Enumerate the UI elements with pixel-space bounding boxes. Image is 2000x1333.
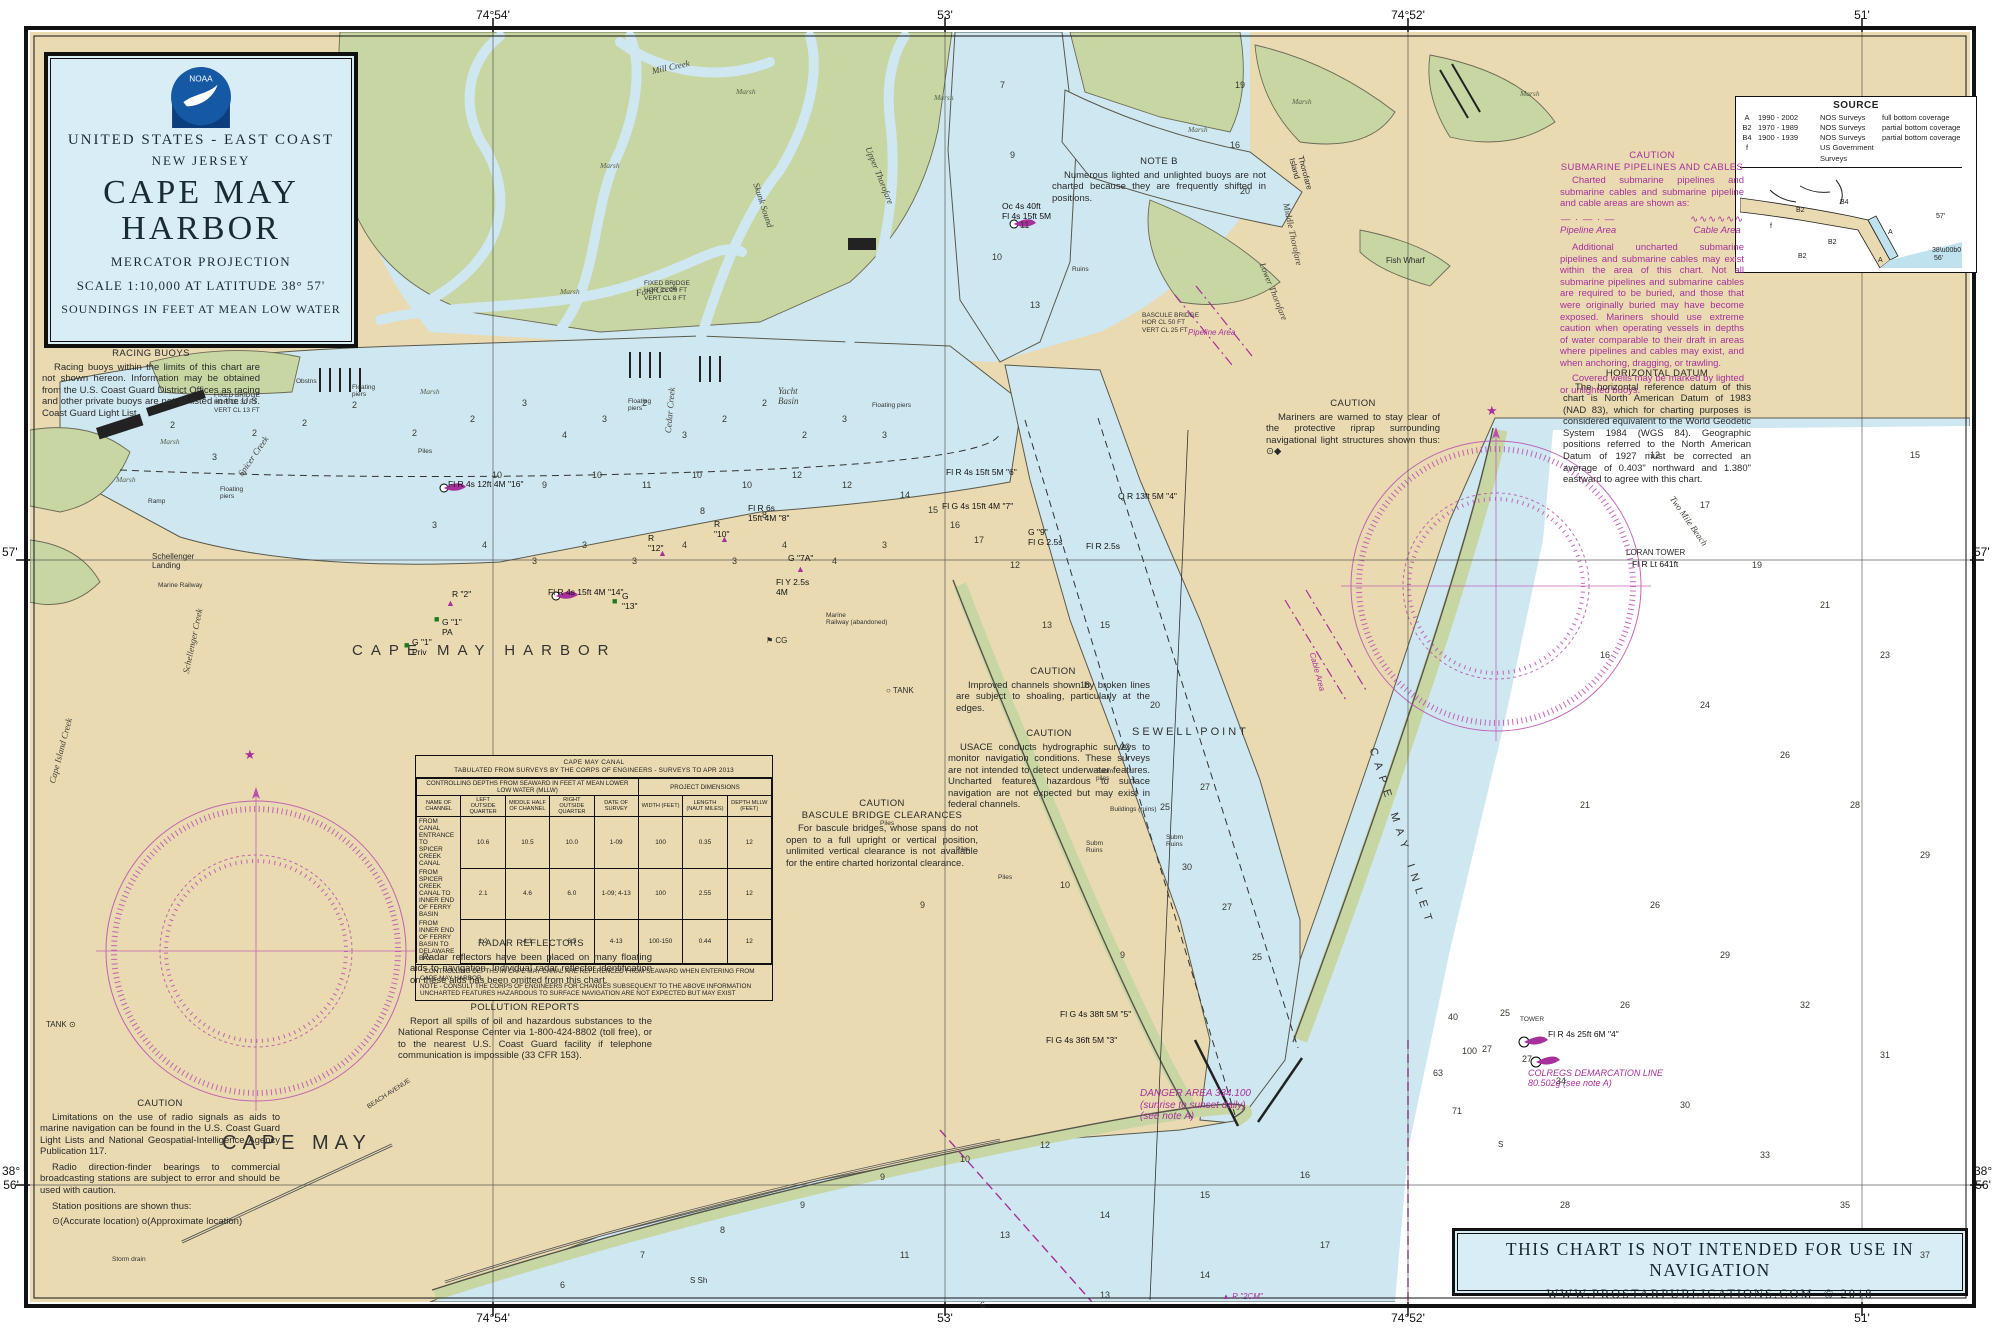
- note-text: The horizontal reference datum of this c…: [1563, 382, 1751, 486]
- note-caution-channels: CAUTIONImproved channels shown by broken…: [956, 666, 1150, 718]
- note-title-caution-pipelines: CAUTION SUBMARINE PIPELINES AND CABLES: [1560, 150, 1744, 173]
- sounding: 9: [920, 900, 925, 910]
- map-label: ▲: [796, 564, 805, 574]
- sounding: 21: [1580, 800, 1590, 810]
- sounding: 34: [1556, 1076, 1566, 1086]
- note-text: Charted submarine pipelines and submarin…: [1560, 175, 1744, 210]
- sounding: 14: [900, 490, 910, 500]
- map-label: G "1" PA: [442, 618, 462, 638]
- sounding: 3: [632, 556, 637, 566]
- sounding: 9: [1010, 150, 1015, 160]
- noaa-logo-icon: NOAA: [170, 66, 232, 128]
- canal-table-cell: LENGTH (NAUT MILES): [683, 796, 727, 817]
- canal-table-cell: 100: [638, 817, 682, 869]
- source-title: SOURCE: [1740, 100, 1972, 111]
- graticule-bottom: 53': [921, 1311, 969, 1325]
- canal-table-cell: 12: [727, 868, 771, 919]
- canal-table-cell: 0.44: [683, 919, 727, 963]
- sounding: 4: [682, 540, 687, 550]
- map-label: Fl R 2.5s: [1086, 542, 1120, 552]
- map-label: Q R 13ft 5M "4": [1118, 492, 1177, 502]
- svg-text:f: f: [1770, 223, 1772, 230]
- map-label: Fl R 6s 15ft 4M "8": [748, 504, 789, 524]
- map-label: Piles: [880, 820, 894, 827]
- sounding: 100: [1462, 1046, 1477, 1056]
- chart-projection: MERCATOR PROJECTION: [48, 254, 354, 270]
- canal-table-cell: LEFT OUTSIDE QUARTER: [461, 796, 505, 817]
- label-loran-tower: LORAN TOWER: [1626, 548, 1685, 557]
- sounding: 12: [842, 480, 852, 490]
- map-label: ★: [1486, 404, 1498, 419]
- sounding: 16: [950, 520, 960, 530]
- sounding: 23: [1880, 650, 1890, 660]
- map-label: ■: [404, 640, 409, 650]
- sounding: 25: [1500, 1008, 1510, 1018]
- sounding: 3: [882, 430, 887, 440]
- map-label: Fl G 4s 15ft 4M "7": [942, 502, 1013, 512]
- canal-table-cell: DEPTH MLLW (FEET): [727, 796, 771, 817]
- sounding: 2: [412, 428, 417, 438]
- canal-table-cell: 2.55: [683, 868, 727, 919]
- sounding: 16: [1230, 140, 1240, 150]
- chart-region: UNITED STATES - EAST COAST: [48, 132, 354, 149]
- note-title-pollution-reports: POLLUTION REPORTS: [398, 1002, 652, 1014]
- note-title-caution-bascule: CAUTION BASCULE BRIDGE CLEARANCES: [786, 798, 978, 821]
- note-pollution-reports: POLLUTION REPORTSReport all spills of oi…: [398, 1002, 652, 1066]
- svg-text:B2: B2: [1796, 207, 1805, 214]
- chart-soundings-note: SOUNDINGS IN FEET AT MEAN LOW WATER: [48, 302, 354, 317]
- sounding: 8: [720, 1225, 725, 1235]
- map-label: Subm Ruins: [1086, 840, 1103, 855]
- graticule-top: 74°52': [1384, 8, 1432, 22]
- disclaimer-line2: WWW.PROSTARPUBLICATIONS.COM © 2018: [1455, 1287, 1965, 1302]
- note-note-b: NOTE BNumerous lighted and unlighted buo…: [1052, 156, 1266, 208]
- publisher-url: WWW.PROSTARPUBLICATIONS.COM: [1546, 1287, 1813, 1301]
- map-label: S Sh: [690, 1276, 707, 1285]
- sounding: 10: [592, 470, 602, 480]
- source-cell: partial bottom coverage: [1882, 133, 1972, 143]
- sounding: 15: [1100, 620, 1110, 630]
- chart-sheet: NOAA UNITED STATES - EAST COAST NEW JERS…: [0, 0, 2000, 1333]
- label-sewell-point: SEWELL POINT: [1132, 726, 1249, 739]
- sounding: 3: [432, 520, 437, 530]
- sounding: 9: [880, 1172, 885, 1182]
- sounding: 3: [682, 430, 687, 440]
- graticule-top: 51': [1838, 8, 1886, 22]
- note-radar-reflectors: RADAR REFLECTORSRadar reflectors have be…: [410, 938, 652, 990]
- svg-text:38\u00b0: 38\u00b0: [1932, 247, 1961, 254]
- map-label: Ruins: [1072, 266, 1089, 273]
- sounding: 14: [1100, 1210, 1110, 1220]
- map-label: Pipeline Area: [1188, 328, 1235, 337]
- map-label: ■: [434, 614, 439, 624]
- map-label: TANK ⊙: [46, 1020, 76, 1029]
- label-schellenger-landing: Schellenger Landing: [152, 552, 194, 570]
- sounding: 12: [1040, 1140, 1050, 1150]
- sounding: 29: [1720, 950, 1730, 960]
- label-fish-wharf: Fish Wharf: [1386, 256, 1425, 265]
- svg-text:B4: B4: [1840, 199, 1849, 206]
- sounding: 33: [1760, 1150, 1770, 1160]
- canal-table-cell: MIDDLE HALF OF CHANNEL: [505, 796, 549, 817]
- canal-table-cell: 12: [727, 817, 771, 869]
- sounding: 6: [980, 1300, 985, 1310]
- map-label: Fl R 4s 12ft 4M "16": [448, 480, 523, 490]
- sounding: 17: [974, 535, 984, 545]
- source-cell: NOS Surveys: [1820, 113, 1878, 123]
- map-label: Marsh: [560, 288, 580, 297]
- sounding: 13: [1030, 300, 1040, 310]
- sounding: 3: [602, 414, 607, 424]
- sounding: 2: [352, 400, 357, 410]
- sounding: 25: [1160, 802, 1170, 812]
- sounding: 8: [700, 506, 705, 516]
- sounding: 26: [1650, 900, 1660, 910]
- sounding: 4: [562, 430, 567, 440]
- map-label: ▲: [446, 598, 455, 608]
- label-yacht-basin: Yacht Basin: [778, 386, 799, 407]
- note-text: Report all spills of oil and hazardous s…: [398, 1016, 652, 1062]
- sounding: 24: [1700, 700, 1710, 710]
- sounding: 13: [1100, 1290, 1110, 1300]
- sounding: 27: [1200, 782, 1210, 792]
- source-row: B41900 - 1939NOS Surveyspartial bottom c…: [1740, 133, 1972, 143]
- map-label: Marsh: [116, 476, 136, 485]
- sounding: 15: [1200, 1190, 1210, 1200]
- source-cell: 1990 - 2002: [1758, 113, 1816, 123]
- svg-text:B2: B2: [1798, 253, 1807, 260]
- source-row: fUS Government Surveys: [1740, 143, 1972, 163]
- source-cell: NOS Surveys: [1820, 123, 1878, 133]
- sounding: 21: [1820, 600, 1830, 610]
- canal-table-cell: 100: [638, 868, 682, 919]
- note-text: Mariners are warned to stay clear of the…: [1266, 412, 1440, 458]
- graticule-top: 53': [921, 8, 969, 22]
- title-block: NOAA UNITED STATES - EAST COAST NEW JERS…: [44, 52, 358, 348]
- map-label: ○ TANK: [886, 686, 914, 695]
- map-label: Marsh: [1188, 126, 1208, 135]
- source-cell: A: [1740, 113, 1754, 123]
- source-cell: full bottom coverage: [1882, 113, 1972, 123]
- sounding: 15: [1910, 450, 1920, 460]
- map-label: Marsh: [420, 388, 440, 397]
- map-label: Marine Railway (abandoned): [826, 612, 887, 627]
- canal-table-cell: 10.5: [505, 817, 549, 869]
- map-label: TOWER: [1520, 1016, 1544, 1023]
- sounding: 3: [732, 556, 737, 566]
- source-cell: B2: [1740, 123, 1754, 133]
- sounding: 3: [582, 540, 587, 550]
- sounding: 9: [1120, 950, 1125, 960]
- svg-text:NOAA: NOAA: [189, 75, 213, 84]
- sounding: 4: [832, 556, 837, 566]
- canal-table-cell: 2.1: [461, 868, 505, 919]
- map-label: Fl Y 2.5s 4M: [776, 578, 809, 598]
- source-cell: [1882, 143, 1972, 163]
- map-label: FIXED BRIDGE HOR CL 29 FT VERT CL 8 FT: [644, 280, 690, 302]
- canal-table: CONTROLLING DEPTHS FROM SEAWARD IN FEET …: [416, 778, 772, 964]
- cable-area-symbol: ∿∿∿∿∿∿Cable Area: [1690, 214, 1744, 237]
- canal-table-cell: PROJECT DIMENSIONS: [638, 779, 771, 796]
- sounding: 10: [1060, 880, 1070, 890]
- source-cell: partial bottom coverage: [1882, 123, 1972, 133]
- map-label: S: [1498, 1140, 1503, 1149]
- graticule-top: 74°54': [469, 8, 517, 22]
- note-text: Numerous lighted and unlighted buoys are…: [1052, 170, 1266, 205]
- note-title-note-b: NOTE B: [1052, 156, 1266, 168]
- sounding: 3: [842, 414, 847, 424]
- chart-scale: SCALE 1:10,000 AT LATITUDE 38° 57': [48, 278, 354, 294]
- map-label: Fl R 4s 25ft 6M "4": [1548, 1030, 1619, 1040]
- sounding: 9: [800, 1200, 805, 1210]
- sounding: 2: [470, 414, 475, 424]
- note-text: ⊙(Accurate location) o(Approximate locat…: [40, 1216, 280, 1228]
- sounding: 40: [1448, 1012, 1458, 1022]
- label-colregs: COLREGS DEMARCATION LINE 80.502g (see no…: [1528, 1068, 1663, 1089]
- sounding: 32: [1800, 1000, 1810, 1010]
- source-cell: 1970 - 1989: [1758, 123, 1816, 133]
- canal-table-cell: 4.6: [505, 868, 549, 919]
- sounding: 37: [1920, 1250, 1930, 1260]
- sounding: 2: [642, 398, 647, 408]
- map-label: Marine Railway: [158, 582, 202, 589]
- disclaimer-line1: THIS CHART IS NOT INTENDED FOR USE IN NA…: [1455, 1239, 1965, 1281]
- map-label: Marsh: [600, 162, 620, 171]
- label-danger-area: DANGER AREA 334.100 (sunrise to sunset d…: [1140, 1088, 1251, 1123]
- map-label: Ramp: [148, 498, 165, 505]
- map-label: ⚑ CG: [766, 636, 787, 645]
- note-text: Radio direction-finder bearings to comme…: [40, 1162, 280, 1197]
- graticule-bottom: 74°52': [1384, 1311, 1432, 1325]
- svg-text:57': 57': [1936, 213, 1945, 220]
- map-label: Piles: [956, 846, 970, 853]
- sounding: 26: [1620, 1000, 1630, 1010]
- sounding: 3: [522, 398, 527, 408]
- sounding: 31: [1880, 1050, 1890, 1060]
- pipeline-area-symbol: — · — · —Pipeline Area: [1560, 214, 1616, 237]
- map-label: Fl G 4s 36ft 5M "3": [1046, 1036, 1117, 1046]
- sounding: 3: [532, 556, 537, 566]
- source-inset-map: B2B4f B2AB2 A57'38\u00b056': [1740, 167, 1962, 268]
- sounding: 20: [1240, 186, 1250, 196]
- note-caution-pipelines: CAUTION SUBMARINE PIPELINES AND CABLESCh…: [1560, 150, 1744, 401]
- note-title-caution-riprap: CAUTION: [1266, 398, 1440, 410]
- canal-table-cell: FROM CANAL ENTRANCE TO SPICER CREEK CANA…: [417, 817, 461, 869]
- sounding: 4: [782, 540, 787, 550]
- map-label: Floating piers: [628, 398, 651, 413]
- map-label: FIXED BRIDGE HOR CL 30 FT VERT CL 13 FT: [214, 392, 260, 414]
- canal-table-cell: 12: [727, 919, 771, 963]
- map-label: Marsh: [1520, 90, 1540, 99]
- label-cape-may-harbor: CAPE MAY HARBOR: [352, 642, 616, 659]
- sounding: 3: [212, 452, 217, 462]
- map-label: ■: [612, 596, 617, 606]
- sounding: 28: [1850, 800, 1860, 810]
- sounding: 4: [482, 540, 487, 550]
- sounding: 30: [1680, 1100, 1690, 1110]
- map-label: Marsh: [160, 438, 180, 447]
- pipeline-cable-symbols: — · — · —Pipeline Area∿∿∿∿∿∿Cable Area: [1560, 214, 1744, 237]
- sounding: 10: [960, 1154, 970, 1164]
- canal-table-cell: WIDTH (FEET): [638, 796, 682, 817]
- sounding: 8: [762, 510, 767, 520]
- sounding: 12: [792, 470, 802, 480]
- source-cell: [1758, 143, 1816, 163]
- graticule-bottom: 74°54': [469, 1311, 517, 1325]
- source-box: SOURCE A1990 - 2002NOS Surveysfull botto…: [1735, 96, 1977, 273]
- sounding: 27: [1222, 902, 1232, 912]
- map-label: Fl G 4s 38ft 5M "5": [1060, 1010, 1131, 1020]
- map-label: Marsh: [736, 88, 756, 97]
- sounding: 19: [1752, 560, 1762, 570]
- svg-text:A: A: [1888, 229, 1893, 236]
- sounding: 11: [642, 480, 651, 490]
- note-title-caution-usace: CAUTION: [948, 728, 1150, 740]
- map-label: ★: [244, 748, 256, 763]
- source-cell: NOS Surveys: [1820, 133, 1878, 143]
- sounding: 10: [992, 252, 1002, 262]
- sounding: 2: [802, 430, 807, 440]
- map-label: Marsh: [1292, 98, 1312, 107]
- sounding: 7: [1000, 80, 1005, 90]
- sounding: 16: [1300, 1170, 1310, 1180]
- map-label: Marsh: [934, 94, 954, 103]
- sounding: 17: [1320, 1240, 1330, 1250]
- sounding: 11: [900, 1250, 909, 1260]
- sounding: 19: [1235, 80, 1245, 90]
- sounding: 13: [1042, 620, 1052, 630]
- sounding: 7: [640, 1250, 645, 1260]
- map-label: Floating piers: [872, 402, 911, 409]
- map-label: G "9" Fl G 2.5s: [1028, 528, 1062, 548]
- label-cape-may: CAPE MAY: [222, 1132, 372, 1155]
- canal-table-cell: 0.35: [683, 817, 727, 869]
- sounding: 28: [1560, 1200, 1570, 1210]
- canal-table-cell: DATE OF SURVEY: [594, 796, 638, 817]
- map-label: Piles: [418, 448, 432, 455]
- sounding: 63: [1433, 1068, 1443, 1078]
- canal-table-cell: 10.0: [550, 817, 594, 869]
- sounding: 2: [762, 398, 767, 408]
- map-label: ▲: [720, 534, 729, 544]
- sounding: 10: [742, 480, 752, 490]
- source-rows: A1990 - 2002NOS Surveysfull bottom cover…: [1740, 113, 1972, 164]
- sounding: 22: [1120, 742, 1130, 752]
- canal-table-cell: CONTROLLING DEPTHS FROM SEAWARD IN FEET …: [417, 779, 639, 796]
- svg-text:A: A: [1878, 257, 1883, 264]
- note-text: Station positions are shown thus:: [40, 1201, 280, 1213]
- sounding: 30: [1182, 862, 1192, 872]
- source-row: B21970 - 1989NOS Surveyspartial bottom c…: [1740, 123, 1972, 133]
- sounding: 18: [1080, 680, 1090, 690]
- sounding: 2: [722, 414, 727, 424]
- map-label: Floating piers: [220, 486, 243, 501]
- note-title-horizontal-datum: HORIZONTAL DATUM: [1563, 368, 1751, 380]
- sounding: 6: [560, 1280, 565, 1290]
- source-cell: 1900 - 1939: [1758, 133, 1816, 143]
- note-text: Improved channels shown by broken lines …: [956, 680, 1150, 715]
- sounding: 20: [1150, 700, 1160, 710]
- sounding: 27: [1522, 1054, 1532, 1064]
- canal-table-cell: 6.0: [550, 868, 594, 919]
- sounding: 15: [928, 505, 938, 515]
- sounding: 27: [1482, 1044, 1492, 1054]
- note-text: For bascule bridges, whose spans do not …: [786, 823, 978, 869]
- graticule-right: 38° 56': [1974, 1164, 1992, 1192]
- note-text: Radar reflectors have been placed on man…: [410, 952, 652, 987]
- sounding: 2: [252, 428, 257, 438]
- note-title-radar-reflectors: RADAR REFLECTORS: [410, 938, 652, 950]
- note-caution-bascule: CAUTION BASCULE BRIDGE CLEARANCESFor bas…: [786, 798, 978, 873]
- graticule-bottom: 51': [1838, 1311, 1886, 1325]
- sounding: 71: [1452, 1106, 1462, 1116]
- map-label: Buildings (ruins): [1110, 806, 1157, 813]
- sounding: 16: [1600, 650, 1610, 660]
- canal-table-cell: NAME OF CHANNEL: [417, 796, 461, 817]
- source-cell: US Government Surveys: [1820, 143, 1878, 163]
- sounding: 12: [1650, 450, 1660, 460]
- sounding: 12: [1010, 560, 1020, 570]
- canal-table-cell: RIGHT OUTSIDE QUARTER: [550, 796, 594, 817]
- sounding: 25: [1252, 952, 1262, 962]
- map-label: Fl R Lt 641ft: [1632, 560, 1678, 570]
- note-horizontal-datum: HORIZONTAL DATUMThe horizontal reference…: [1563, 368, 1751, 490]
- copyright-year: © 2018: [1824, 1287, 1874, 1301]
- map-label: Subm Ruins: [1166, 834, 1183, 849]
- sounding: 11: [1020, 220, 1029, 230]
- map-label: G "13": [622, 592, 638, 612]
- sounding: 10: [492, 470, 502, 480]
- sounding: 9: [542, 480, 547, 490]
- sounding: 14: [1200, 1270, 1210, 1280]
- sounding: 13: [1000, 1230, 1010, 1240]
- map-label: Obstns: [296, 378, 317, 385]
- canal-table-cell: FROM SPICER CREEK CANAL TO INNER END OF …: [417, 868, 461, 919]
- chart-title: CAPE MAY HARBOR: [48, 175, 354, 246]
- graticule-left: 38° 56': [2, 1164, 20, 1192]
- map-label: Storm drain: [112, 1256, 146, 1263]
- canal-table-cell: 1-09; 4-13: [594, 868, 638, 919]
- canal-table-title: CAPE MAY CANAL: [416, 756, 772, 767]
- sounding: 2: [302, 418, 307, 428]
- map-label: ▲ R "2CM": [1222, 1292, 1263, 1301]
- sounding: 2: [170, 420, 175, 430]
- map-label: Fl R 4s 15ft 5M "6": [946, 468, 1017, 478]
- sounding: 10: [692, 470, 702, 480]
- sounding: 35: [1840, 1200, 1850, 1210]
- note-title-caution-radio: CAUTION: [40, 1098, 280, 1110]
- sounding: 29: [1920, 850, 1930, 860]
- map-label: ▲: [658, 548, 667, 558]
- map-label: G "1" Priv: [412, 638, 432, 658]
- graticule-left: 57': [2, 545, 18, 559]
- map-label: G "7A": [788, 554, 813, 564]
- map-label: Oc 4s 40ft Fl 4s 15ft 5M: [1002, 202, 1051, 222]
- map-label: Subm piles: [1096, 768, 1113, 783]
- canal-table-cell: 1-09: [594, 817, 638, 869]
- note-text: Additional uncharted submarine pipelines…: [1560, 242, 1744, 369]
- note-title-racing-buoys: RACING BUOYS: [42, 348, 260, 360]
- svg-text:B2: B2: [1828, 239, 1837, 246]
- sounding: 3: [882, 540, 887, 550]
- note-title-caution-channels: CAUTION: [956, 666, 1150, 678]
- note-caution-riprap: CAUTIONMariners are warned to stay clear…: [1266, 398, 1440, 462]
- map-label: Floating piers: [352, 384, 375, 399]
- canal-table-subtitle: TABULATED FROM SURVEYS BY THE CORPS OF E…: [416, 767, 772, 778]
- disclaimer-box: THIS CHART IS NOT INTENDED FOR USE IN NA…: [1452, 1228, 1968, 1296]
- source-row: A1990 - 2002NOS Surveysfull bottom cover…: [1740, 113, 1972, 123]
- sounding: 17: [1700, 500, 1710, 510]
